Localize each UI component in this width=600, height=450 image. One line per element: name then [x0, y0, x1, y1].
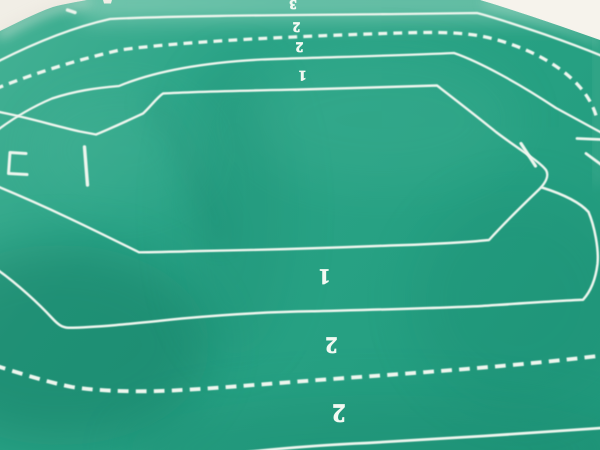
- svg-text:3: 3: [290, 0, 297, 11]
- svg-text:2: 2: [293, 18, 300, 34]
- svg-text:2: 2: [296, 39, 304, 55]
- svg-text:1: 1: [319, 265, 330, 290]
- svg-text:1: 1: [299, 67, 307, 83]
- svg-text:2: 2: [326, 332, 338, 358]
- svg-text:2: 2: [333, 398, 346, 427]
